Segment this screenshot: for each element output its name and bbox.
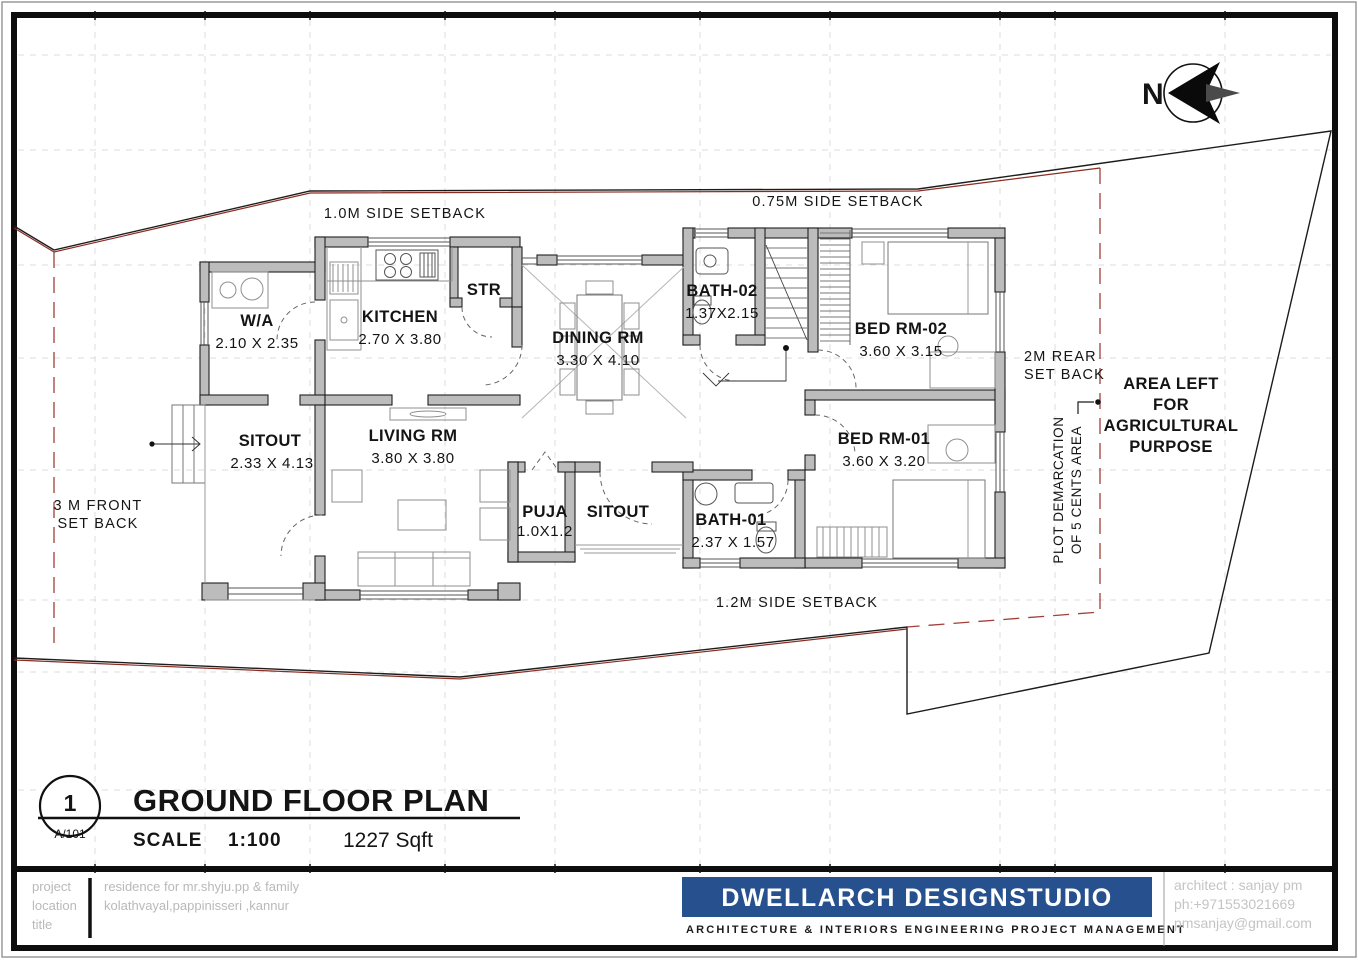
setback-top-left: 1.0M SIDE SETBACK <box>324 206 486 222</box>
room-sitout-rear-name: SITOUT <box>587 503 650 521</box>
room-bath1-name: BATH-01 <box>695 511 766 529</box>
room-dining-name: DINING RM <box>552 329 644 347</box>
floor-plan-canvas: N <box>0 0 1358 960</box>
room-kitchen-name: KITCHEN <box>362 308 438 326</box>
room-bed1-name: BED RM-01 <box>838 430 931 448</box>
room-living-name: LIVING RM <box>369 427 458 445</box>
setback-bottom: 1.2M SIDE SETBACK <box>716 595 878 611</box>
room-puja-name: PUJA <box>522 503 568 521</box>
room-sitout-front-dims: 2.33 X 4.13 <box>230 455 313 472</box>
room-puja-dims: 1.0X1.2 <box>517 523 573 540</box>
room-wa-name: W/A <box>240 312 273 330</box>
setback-top-right: 0.75M SIDE SETBACK <box>752 194 924 210</box>
room-bed1-dims: 3.60 X 3.20 <box>842 453 925 470</box>
room-sitout-front-name: SITOUT <box>239 432 302 450</box>
footer-location-value: kolathvayal,pappinisseri ,kannur <box>104 898 290 913</box>
company-name: DWELLARCH DESIGNSTUDIO <box>721 884 1112 912</box>
setback-front-line1: 3 M FRONT <box>54 498 143 514</box>
area-note-line2: FOR <box>1153 396 1189 414</box>
area-value: 1227 Sqft <box>343 829 433 852</box>
drawing-number: 1 <box>64 790 77 816</box>
area-note-line3: AGRICULTURAL <box>1104 417 1239 435</box>
footer-label-project: project <box>32 879 71 894</box>
setback-front-line2: SET BACK <box>57 516 138 532</box>
area-note-line4: PURPOSE <box>1129 438 1213 456</box>
demarcation-line1: PLOT DEMARCATION <box>1051 416 1066 563</box>
room-wa-dims: 2.10 X 2.35 <box>215 335 298 352</box>
drawing-sheet: N <box>0 0 1358 960</box>
area-note-line1: AREA LEFT <box>1123 375 1219 393</box>
company-tagline: ARCHITECTURE & INTERIORS ENGINEERING PRO… <box>686 924 1186 936</box>
room-bed2-name: BED RM-02 <box>855 320 948 338</box>
room-bath1-dims: 2.37 X 1.57 <box>691 534 774 551</box>
room-dining-dims: 3.30 X 4.10 <box>556 352 639 369</box>
room-bed2-dims: 3.60 X 3.15 <box>859 343 942 360</box>
scale-value: 1:100 <box>228 830 282 851</box>
drawing-title: GROUND FLOOR PLAN <box>133 783 489 818</box>
room-living-dims: 3.80 X 3.80 <box>371 450 454 467</box>
setback-rear-line2: SET BACK <box>1024 367 1105 383</box>
footer-project-value: residence for mr.shyju.pp & family <box>104 879 300 894</box>
room-kitchen-dims: 2.70 X 3.80 <box>358 331 441 348</box>
north-letter: N <box>1142 78 1164 111</box>
architect-name: architect : sanjay pm <box>1174 877 1302 893</box>
setback-rear-line1: 2M REAR <box>1024 349 1097 365</box>
footer-label-location: location <box>32 898 77 913</box>
sheet-number: A/101 <box>54 827 86 841</box>
scale-label: SCALE <box>133 830 202 851</box>
room-bath2-dims: 1.37X2.15 <box>685 305 759 322</box>
room-bath2-name: BATH-02 <box>686 282 757 300</box>
architect-email: pmsanjay@gmail.com <box>1174 915 1312 931</box>
demarcation-line2: OF 5 CENTS AREA <box>1069 426 1084 554</box>
architect-phone: ph:+971553021669 <box>1174 896 1295 912</box>
footer-label-title: title <box>32 917 52 932</box>
room-str-name: STR <box>467 281 501 299</box>
